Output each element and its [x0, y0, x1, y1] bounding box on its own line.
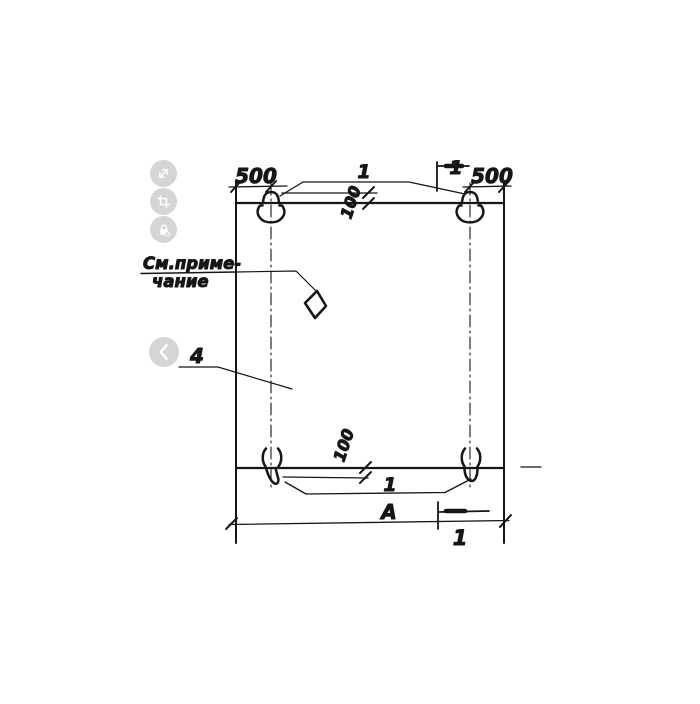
chevron-left-icon	[149, 337, 179, 367]
section-label-top: 1	[449, 157, 462, 179]
lifting-loop-bottom-right	[462, 449, 481, 482]
diamond-opening	[305, 291, 326, 318]
section-mark-bottom: 1	[438, 502, 489, 550]
callout-label-top: 1	[357, 161, 370, 183]
loop-axis-lines	[271, 183, 470, 487]
dim-label-width: А	[379, 500, 396, 524]
crop-icon	[157, 195, 170, 208]
callout-label-bottom: 1	[383, 474, 396, 496]
technical-drawing: 500 500 1 100 1 См.п	[0, 0, 700, 700]
note-text-line2: чание	[152, 272, 209, 291]
dim-label-100-top: 100	[337, 183, 365, 221]
dim-label-500-right: 500	[471, 164, 513, 188]
previous-button[interactable]	[149, 337, 179, 367]
protect-button[interactable]	[150, 216, 177, 243]
expand-icon	[157, 167, 170, 180]
dim-label-100-bottom: 100	[330, 426, 358, 464]
section-label-bottom: 1	[453, 526, 468, 550]
crop-button[interactable]	[150, 188, 177, 215]
viewer-stage: 500 500 1 100 1 См.п	[0, 0, 700, 700]
dimension-top-right-500: 500	[463, 164, 513, 192]
note-text-line1: См.приме-	[143, 254, 241, 273]
fullscreen-button[interactable]	[150, 160, 177, 187]
part-label: 4	[189, 344, 204, 368]
dimension-bottom-100: 100	[283, 426, 371, 483]
section-mark-top: 1	[437, 157, 469, 191]
dim-label-500-left: 500	[235, 164, 277, 188]
lock-icon	[157, 223, 171, 237]
lifting-loop-bottom-left	[263, 449, 282, 484]
dimension-width-A: А	[226, 500, 511, 529]
note-callout: См.приме- чание	[141, 254, 326, 318]
dimension-top-left-500: 500	[229, 164, 287, 192]
